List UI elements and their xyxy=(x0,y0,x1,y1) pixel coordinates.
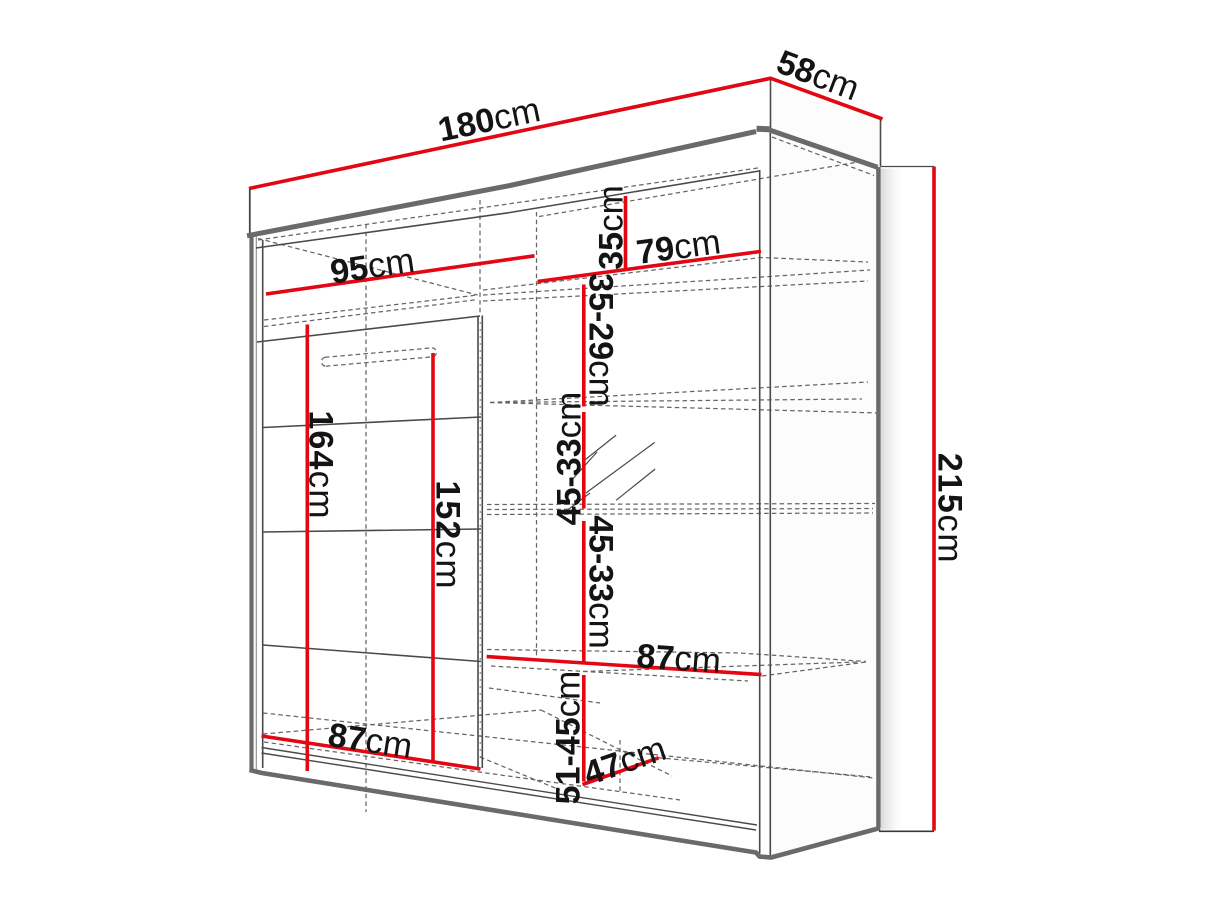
svg-text:164cm: 164cm xyxy=(302,410,341,519)
svg-text:45-33cm: 45-33cm xyxy=(550,392,589,526)
svg-text:45-33cm: 45-33cm xyxy=(582,515,621,649)
svg-text:35cm: 35cm xyxy=(592,185,631,269)
svg-text:35-29cm: 35-29cm xyxy=(582,273,621,407)
svg-text:51-45cm: 51-45cm xyxy=(549,671,588,805)
svg-text:87cm: 87cm xyxy=(635,636,722,681)
svg-text:152cm: 152cm xyxy=(429,480,468,589)
svg-text:215cm: 215cm xyxy=(931,453,970,564)
